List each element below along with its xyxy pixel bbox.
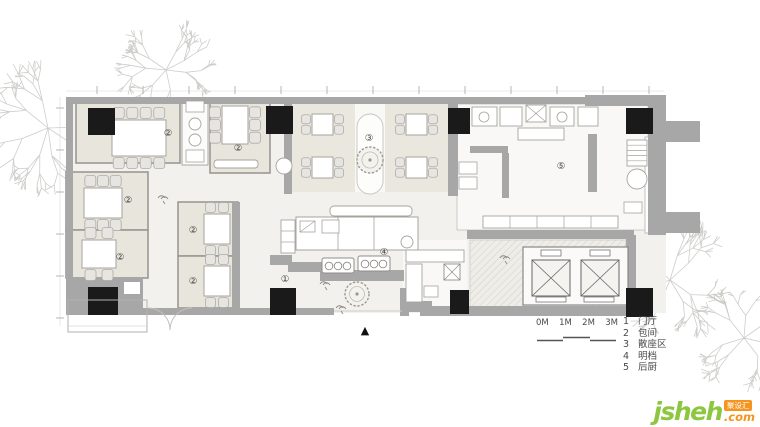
scale-bar-labels: 0M1M2M3M [536, 318, 618, 328]
legend-item-3: 3散座区 [623, 339, 667, 351]
legend-item-label: 散座区 [638, 339, 667, 351]
legend-item-number: 3 [623, 339, 632, 351]
room-marker-10: ① [281, 274, 290, 285]
scale-label: 0M [536, 318, 549, 328]
legend: 1门厅2包间3散座区4明档5后厨 [623, 316, 667, 374]
legend-item-label: 后厨 [638, 362, 657, 374]
legend-item-label: 包间 [638, 328, 657, 340]
legend-item-label: 门厅 [638, 316, 657, 328]
scale-label: 1M [559, 318, 572, 328]
watermark-right-block: 聚设汇 .com [724, 400, 755, 422]
elevator-bank [523, 247, 628, 305]
room-marker-8: ④ [380, 247, 389, 258]
watermark-brand: jsheh [653, 401, 722, 422]
legend-item-5: 5后厨 [623, 362, 667, 374]
legend-item-4: 4明档 [623, 351, 667, 363]
legend-item-number: 1 [623, 316, 632, 328]
scale-label: 2M [582, 318, 595, 328]
legend-item-label: 明档 [638, 351, 657, 363]
legend-item-number: 5 [623, 362, 632, 374]
watermark-logo: jsheh 聚设汇 .com [653, 400, 755, 422]
scale-bar: 0M1M2M3M [536, 318, 618, 347]
legend-item-1: 1门厅 [623, 316, 667, 328]
room-marker-1: ② [164, 128, 173, 139]
room-marker-9: ⑤ [557, 161, 566, 172]
floor-plan-canvas: ②②②②②②③④⑤①▲ 0M1M2M3M 1门厅2包间3散座区4明档5后厨 js… [0, 0, 760, 427]
room-marker-4: ② [116, 252, 125, 263]
legend-item-number: 2 [623, 328, 632, 340]
room-marker-3: ② [124, 195, 133, 206]
scale-bar-line [536, 334, 618, 343]
room-marker-7: ③ [365, 133, 374, 144]
legend-item-2: 2包间 [623, 328, 667, 340]
scale-label: 3M [605, 318, 618, 328]
room-marker-6: ② [189, 276, 198, 287]
entrance-direction-marker: ▲ [361, 324, 370, 337]
room-marker-2: ② [234, 143, 243, 154]
legend-item-number: 4 [623, 351, 632, 363]
watermark-tld: .com [724, 412, 755, 422]
room-marker-5: ② [189, 225, 198, 236]
